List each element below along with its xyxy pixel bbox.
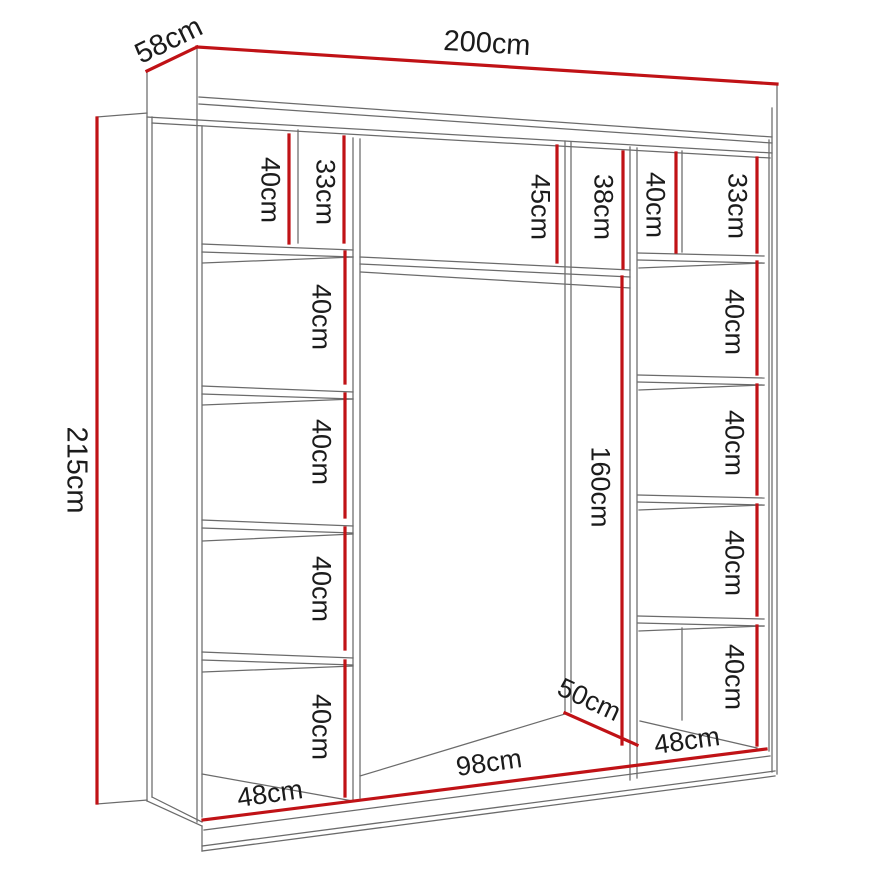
wardrobe-dimension-diagram: 200cm 58cm 215cm 40cm 33cm 40cm 40cm 40c… (0, 0, 880, 880)
dim-right-cell-1: 40cm (721, 289, 748, 355)
dim-overall-height: 215cm (62, 426, 91, 513)
middle-top-shelf (360, 257, 630, 288)
dim-left-top-a: 40cm (257, 157, 284, 223)
dim-left-cell-3: 40cm (308, 556, 335, 622)
dim-mid-top-b: 38cm (590, 174, 617, 240)
dim-mid-top-a: 45cm (527, 174, 554, 240)
dim-left-top-b: 33cm (312, 159, 339, 225)
dim-left-cell-2: 40cm (308, 419, 335, 485)
dim-mid-hanging-height: 160cm (587, 446, 614, 527)
dim-right-cell-2: 40cm (721, 410, 748, 476)
dim-right-cell-3: 40cm (721, 530, 748, 596)
dim-overall-width: 200cm (443, 27, 532, 61)
dim-left-cell-1: 40cm (308, 284, 335, 350)
dim-right-top-a: 40cm (642, 172, 669, 238)
dim-right-top-b: 33cm (724, 173, 751, 239)
dim-right-cell-4: 40cm (721, 644, 748, 710)
height-dimension-extension-ticks (97, 113, 147, 804)
dim-left-cell-4: 40cm (308, 694, 335, 760)
